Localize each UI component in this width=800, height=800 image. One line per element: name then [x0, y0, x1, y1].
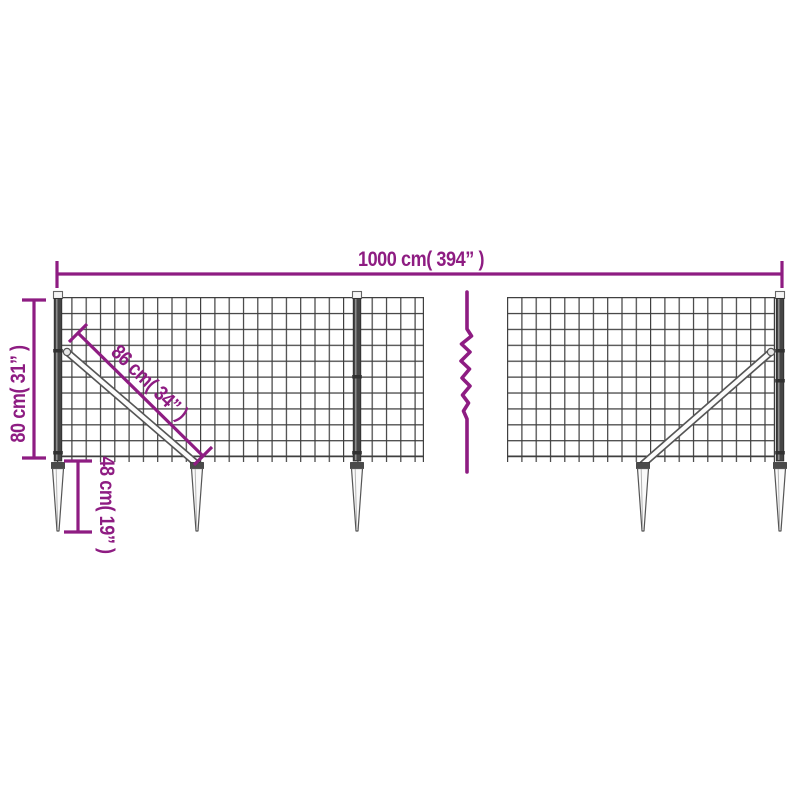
- dimension-spike-lines: [64, 461, 92, 532]
- ground-spike-left-brace: [191, 463, 204, 532]
- ground-spike-left-post: [52, 463, 65, 532]
- dimension-label-spike-length: 48 cm( 19” ): [94, 456, 118, 553]
- product-dimension-image: 1000 cm( 394” ) 80 cm( 31” ) 86 cm( 34” …: [0, 0, 800, 800]
- dimension-label-total-width: 1000 cm( 394” ): [358, 248, 484, 272]
- fence-illustration: [0, 0, 800, 800]
- dimension-label-fence-height: 80 cm( 31” ): [7, 345, 31, 442]
- mesh-panel-left: [57, 297, 424, 462]
- ground-spike-right-brace: [637, 463, 650, 532]
- ground-spike-right-post: [774, 463, 787, 532]
- break-squiggle-line: [461, 292, 472, 472]
- fence-post-middle: [352, 292, 362, 462]
- fence-post-right: [775, 292, 785, 462]
- fence-post-left: [53, 292, 63, 462]
- ground-spike-middle-post: [351, 463, 364, 532]
